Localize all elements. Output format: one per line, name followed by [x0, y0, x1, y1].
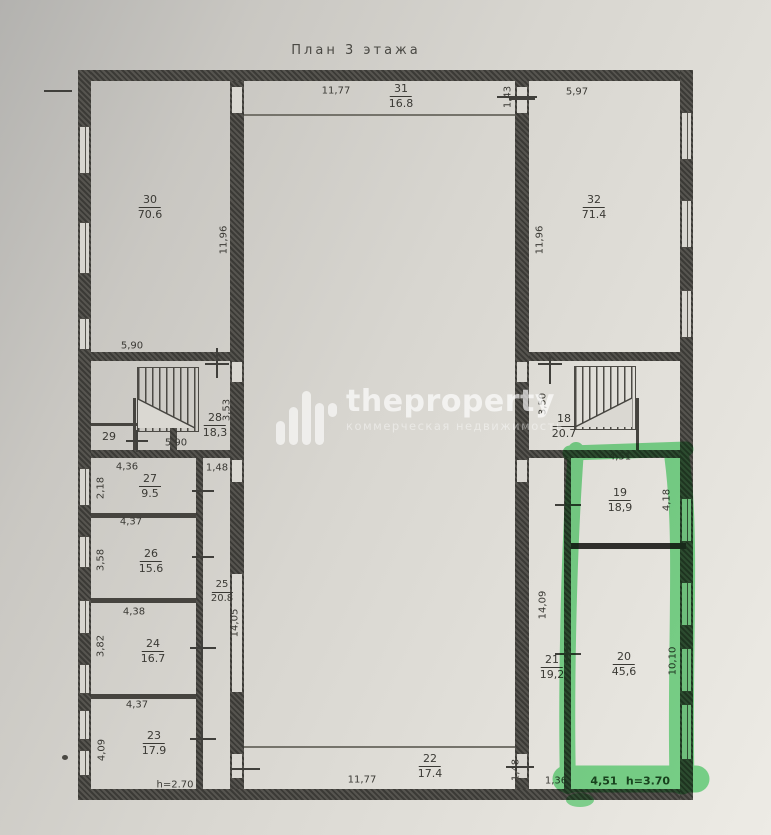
watermark-text: theproperty коммерческая недвижимость — [346, 386, 564, 433]
highlight-right — [677, 458, 683, 782]
watermark-logo-icon — [276, 388, 337, 445]
watermark-brand: theproperty — [346, 386, 564, 418]
highlight-blob — [566, 793, 594, 807]
watermark: theproperty коммерческая недвижимость — [276, 386, 564, 445]
highlight-left — [567, 450, 576, 786]
floor-plan-photo: План 3 этажа — [0, 0, 771, 835]
watermark-tagline: коммерческая недвижимость — [346, 419, 564, 433]
